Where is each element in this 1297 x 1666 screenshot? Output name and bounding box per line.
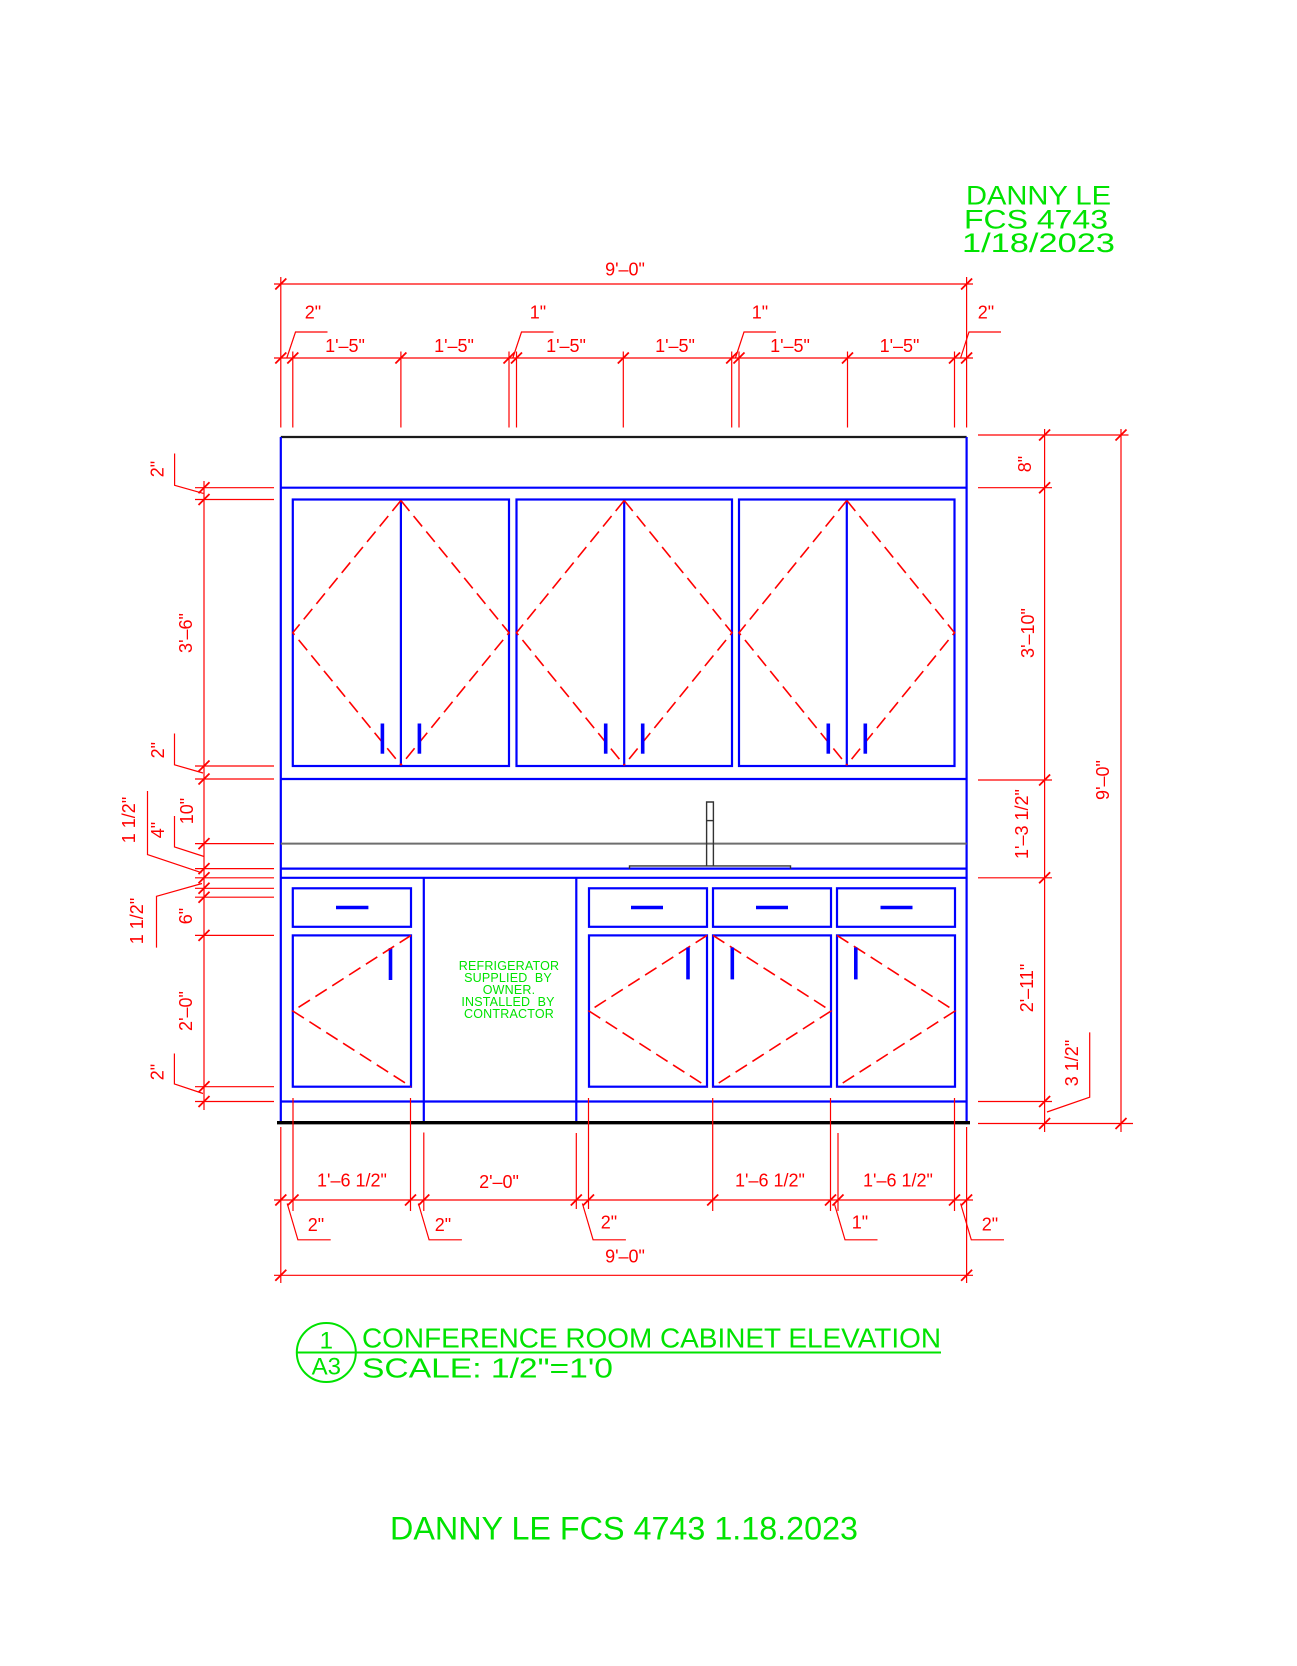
svg-text:2": 2": [148, 461, 168, 477]
svg-text:1'–6 1/2": 1'–6 1/2": [317, 1171, 387, 1191]
svg-text:A3: A3: [312, 1354, 341, 1381]
svg-text:CONFERENCE ROOM CABINET ELEVAT: CONFERENCE ROOM CABINET ELEVATION: [362, 1323, 941, 1354]
svg-text:3'–6": 3'–6": [176, 613, 196, 653]
svg-text:SCALE: 1/2"=1'0: SCALE: 1/2"=1'0: [362, 1353, 613, 1384]
svg-text:8": 8": [1015, 456, 1035, 472]
svg-text:1'–5": 1'–5": [546, 336, 586, 356]
svg-text:10": 10": [177, 798, 197, 824]
svg-text:DANNY LE FCS 4743 1.18.2023: DANNY LE FCS 4743 1.18.2023: [390, 1511, 858, 1547]
svg-text:1'–6 1/2": 1'–6 1/2": [735, 1171, 805, 1191]
svg-text:6": 6": [176, 908, 196, 924]
svg-text:1: 1: [320, 1328, 333, 1355]
svg-text:1'–5": 1'–5": [325, 336, 365, 356]
svg-text:2": 2": [601, 1213, 617, 1233]
svg-text:2": 2": [308, 1215, 324, 1235]
svg-text:2": 2": [148, 742, 168, 758]
svg-text:1'–5": 1'–5": [770, 336, 810, 356]
svg-text:4": 4": [148, 822, 168, 838]
svg-text:3 1/2": 3 1/2": [1062, 1040, 1082, 1086]
svg-text:1": 1": [852, 1213, 868, 1233]
svg-text:9'–0": 9'–0": [605, 260, 645, 280]
svg-text:9'–0": 9'–0": [1093, 760, 1113, 800]
svg-text:2": 2": [978, 303, 994, 323]
svg-text:1'–6 1/2": 1'–6 1/2": [863, 1171, 933, 1191]
svg-text:1'–5": 1'–5": [434, 336, 474, 356]
svg-text:2": 2": [435, 1215, 451, 1235]
svg-text:2": 2": [148, 1064, 168, 1080]
svg-text:1 1/2": 1 1/2": [127, 898, 147, 944]
svg-text:9'–0": 9'–0": [605, 1247, 645, 1267]
svg-text:1": 1": [752, 303, 768, 323]
svg-text:2": 2": [982, 1215, 998, 1235]
svg-text:1": 1": [530, 303, 546, 323]
svg-text:2'–11": 2'–11": [1017, 964, 1037, 1013]
svg-text:1'–3 1/2": 1'–3 1/2": [1012, 789, 1032, 859]
svg-text:2'–0": 2'–0": [176, 991, 196, 1031]
svg-text:2'–0": 2'–0": [479, 1172, 519, 1192]
svg-text:1/18/2023: 1/18/2023: [962, 228, 1115, 258]
svg-text:1'–5": 1'–5": [880, 336, 920, 356]
svg-text:1'–5": 1'–5": [655, 336, 695, 356]
svg-text:3'–10": 3'–10": [1018, 608, 1038, 658]
svg-text:2": 2": [305, 303, 321, 323]
svg-text:1 1/2": 1 1/2": [119, 797, 139, 843]
svg-text:CONTRACTOR: CONTRACTOR: [464, 1007, 554, 1021]
